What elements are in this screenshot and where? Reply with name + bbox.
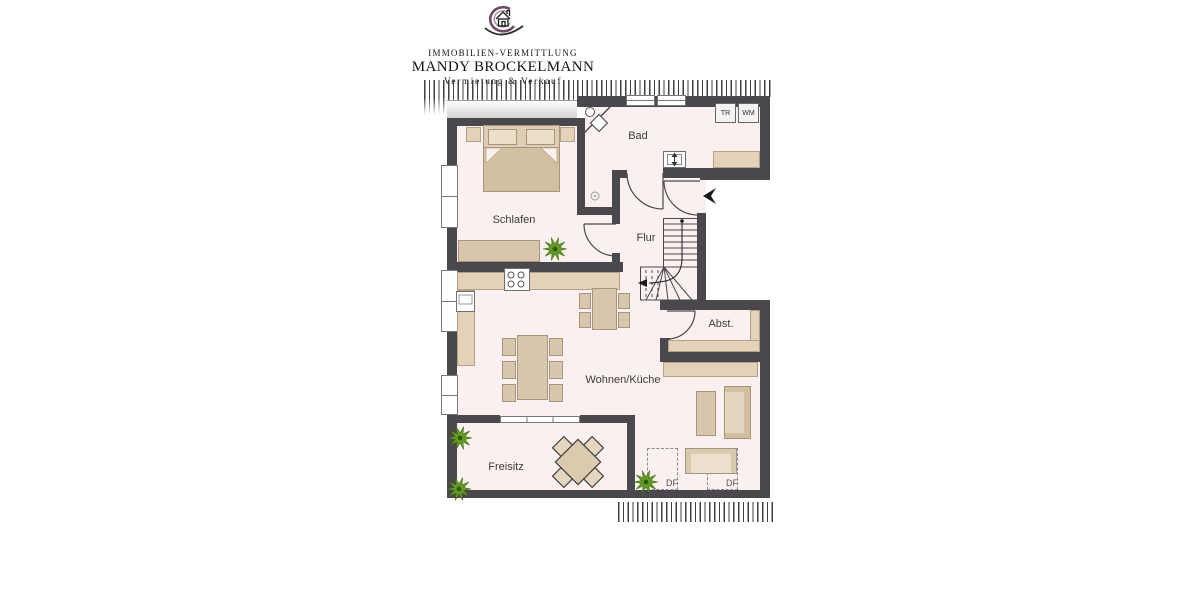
storage-shelf <box>668 340 760 352</box>
bath-counter <box>713 151 760 168</box>
sideboard-wohnen <box>663 362 758 377</box>
nightstand <box>560 127 575 142</box>
dryer-box: TR <box>715 103 736 123</box>
wall-segment <box>700 168 770 180</box>
room-label-abst: Abst. <box>708 318 733 330</box>
wall-segment <box>660 352 770 362</box>
wall-segment <box>612 174 620 224</box>
stove <box>504 268 530 291</box>
loveseat-arm <box>731 449 736 473</box>
logo-line-2: MANDY BROCKELMANN <box>408 59 598 76</box>
chair <box>618 312 630 328</box>
wall-segment <box>627 415 635 498</box>
pillow <box>488 129 517 145</box>
agency-logo: IMMOBILIEN-VERMITTLUNG MANDY BROCKELMANN… <box>408 4 598 87</box>
chair <box>502 384 516 402</box>
small-table <box>592 288 617 330</box>
terrace-sliding-door <box>500 416 580 423</box>
roof-hatch-bottom <box>618 502 774 522</box>
washer-box: WM <box>738 103 759 123</box>
loveseat-back <box>686 449 736 454</box>
wall-segment <box>627 490 770 498</box>
wall-segment <box>577 207 620 215</box>
roof-slope-strip <box>447 100 577 118</box>
room-label-schlafen: Schlafen <box>493 214 536 226</box>
nightstand <box>466 127 481 142</box>
entry-doorway-floor <box>697 178 706 213</box>
chair <box>579 312 591 328</box>
chair <box>549 361 563 379</box>
chair <box>579 293 591 309</box>
wall-segment <box>760 300 770 498</box>
toilet-tank <box>667 154 682 165</box>
window-schlafen <box>441 165 458 228</box>
roof-window-label: DF <box>726 478 738 488</box>
window-wohnen-2 <box>441 375 458 415</box>
chair <box>502 338 516 356</box>
washer-label: WM <box>742 110 754 117</box>
wall-segment <box>447 332 457 375</box>
chair <box>549 338 563 356</box>
dining-table <box>517 335 548 400</box>
wall-segment <box>447 490 635 498</box>
room-label-bad: Bad <box>628 130 648 142</box>
kitchen-sink <box>456 291 475 312</box>
wall-segment <box>697 213 706 303</box>
logo-swirl-house-icon <box>479 4 527 42</box>
wall-segment <box>447 415 457 498</box>
sofa-arm <box>725 433 744 438</box>
wall-segment <box>577 118 585 215</box>
window-bad-1 <box>626 95 655 106</box>
logo-line-1: IMMOBILIEN-VERMITTLUNG <box>408 48 598 58</box>
lounge-table <box>696 391 716 436</box>
bed-blanket <box>483 147 560 192</box>
sofa-arm <box>725 387 744 392</box>
floor-plan-page: IMMOBILIEN-VERMITTLUNG MANDY BROCKELMANN… <box>0 0 1200 600</box>
chair <box>549 384 563 402</box>
sideboard-schlafen <box>458 240 540 262</box>
wall-segment <box>447 415 500 423</box>
chair <box>618 293 630 309</box>
dryer-label: TR <box>721 110 730 117</box>
room-label-flur: Flur <box>637 232 656 244</box>
sofa-back <box>744 387 750 438</box>
window-bad-2 <box>657 95 686 106</box>
wall-segment <box>660 300 770 310</box>
wall-segment <box>580 415 635 423</box>
room-label-freisitz: Freisitz <box>488 461 523 473</box>
room-label-wohnen: Wohnen/Küche <box>585 374 660 386</box>
chair <box>502 361 516 379</box>
wall-segment <box>447 262 623 272</box>
pillow <box>526 129 555 145</box>
loveseat-arm <box>686 449 691 473</box>
wall-segment <box>663 168 700 178</box>
roof-window-label: DF <box>666 478 678 488</box>
storage-shelf <box>750 310 760 341</box>
